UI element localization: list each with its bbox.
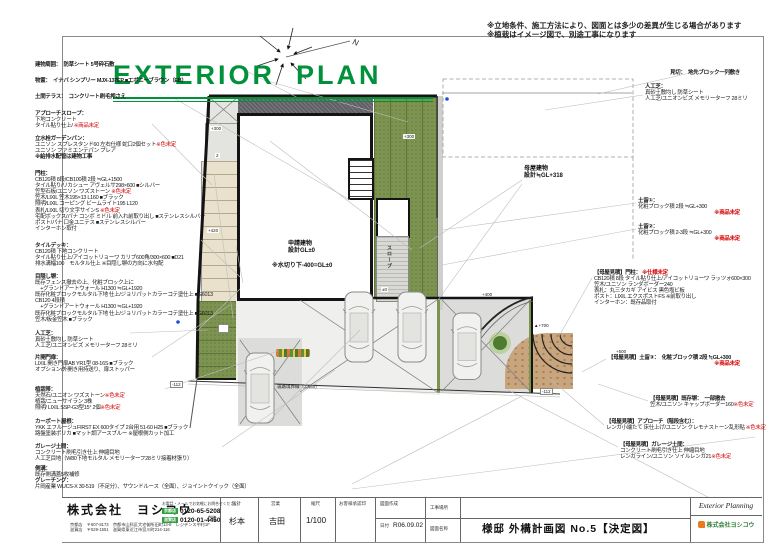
tb-row-divider [375, 518, 690, 519]
entry-porch [376, 198, 410, 238]
dim-400: +400 [481, 292, 493, 297]
spec-carport-roof: カーポート屋根：YKK エフルージュFIRST EX 600タイプ 2台用 51… [35, 419, 188, 437]
mizukiri-note: ※水切り下-400=GL±0 [272, 263, 332, 270]
spec-edge-blocks: 見切： 地先ブロック一列敷き [640, 70, 740, 76]
tb-divider [460, 498, 461, 542]
turf-joint-line-2 [529, 300, 532, 393]
sales-name: 吉田 [269, 516, 285, 527]
tb-divider [335, 498, 336, 542]
spec-doma-terrace: 土間テラス： コンクリート刷毛押さえ [35, 94, 126, 100]
tel-badge-shiga: 滋賀店 [162, 517, 178, 523]
logo-tagline: Exterior Planning [690, 501, 762, 510]
logo-cell: Exterior Planning 株式会社ヨシコウ [690, 498, 762, 542]
spec-retaining-2: 土留②：化粧ブロック積 2-3段 ≒GL+300※商品未定 [638, 224, 740, 242]
spec-artificial-turf-right: 人工芝：真砂土敷均し 防草シート人工芝/ユニオンビズ メモリーターフ 28ミリ [645, 84, 747, 102]
spec-omoya-garage: 【母屋見積】ガレージ土間：コンクリート刷毛引き仕上 伸縮目地レンガライン/ユニソ… [620, 442, 740, 460]
drawing-title: 様邸 外構計画図 No.5【決定図】 [482, 521, 655, 536]
tb-divider [425, 498, 426, 542]
omoya-label-line2: 設計≒GL+318 [524, 173, 563, 180]
disclaimer-line-2: ※植栽はイメージ図で、別途工事になります [487, 30, 741, 39]
dim-700: ▲+700 [533, 323, 550, 328]
date-header: 日付 [380, 523, 389, 529]
scale-header: 縮尺 [311, 501, 320, 507]
slope-ramp-label: スロープ [386, 245, 393, 269]
spec-gate-pillar: 門柱：CB120積 8段/CB100積 2段 ≒GL+1500タイル貼り/リカシ… [35, 171, 205, 232]
company-address-shiga: 滋賀店 〒529-1551 滋賀県東近江市宮川町214-116 [70, 527, 210, 532]
dim-landing: +300 [210, 126, 222, 131]
date-value: R06.09.02 [393, 522, 423, 529]
main-label-line2: 設計GL±0 [288, 248, 315, 255]
tb-divider [375, 498, 376, 542]
omoya-building-label: 母屋建物 設計≒GL+318 [524, 166, 563, 180]
tel-badge-kyoto: 京都店 [162, 508, 178, 514]
tb-divider [300, 498, 301, 542]
spec-artificial-turf: 人工芝：真砂土敷均し 防草シート人工芝/ユニオンビズ メモリーターフ 28ミリ [35, 331, 137, 349]
dim-500: +500 [615, 349, 627, 354]
main-building-outline [237, 113, 373, 301]
spec-storage-shed: 物置： イナバ シンプリー MJX-137EP ■エボニーブラウン（EB） [35, 78, 187, 84]
designer-header: 設計 [232, 501, 241, 507]
drawing-name-header: 図面名称 [430, 526, 448, 532]
approval-header: お客様承認印 [339, 501, 366, 507]
spec-omoya-approach: 【母屋見積】アプローチ（階段含む）：レンガ小端たて 床仕上げ/ユニソン クレモナ… [606, 419, 740, 431]
disclaimer-line-1: ※立地条件、施工方法により、図面とは多少の差異が生じる場合があります [487, 21, 741, 30]
company-contact-note: お電話・メールでお気軽にお問合せください [162, 502, 238, 507]
drawn-header: 図面作成 [380, 501, 398, 507]
spec-omoya-existing-wall: 【母屋見積】既存塀： 一部撤去笠木/ユニソン キャップボーダー160※色未定 [650, 396, 740, 408]
scale-value: 1/100 [306, 516, 326, 525]
main-building-label: 申請建物 設計GL±0 [288, 241, 315, 255]
spec-gutter: 側溝：既存側溝蓋5枚補修グレーチング：片岡産業 WUCS-X 30-519（不足… [35, 466, 250, 490]
tb-divider [258, 498, 259, 542]
site-location-header: 工事場所 [430, 505, 448, 511]
company-logo: 株式会社ヨシコウ [690, 520, 762, 529]
spec-approach-slope: アプローチスロープ：下地コンクリートタイル貼り仕上/ ※商品未定 [35, 111, 99, 129]
dim-green300: +300 [403, 134, 415, 139]
dim-step2: 2 [215, 153, 220, 158]
mail-icon: ✉ [208, 514, 216, 525]
dim-mid: +420 [207, 228, 219, 233]
turf-marker-box [218, 324, 229, 333]
sales-header: 営業 [271, 501, 280, 507]
spec-omoya-retaining-3: 【母屋見積】土留③： 化粧ブロック積 2段 ≒GL+300※商品未定 [608, 355, 740, 367]
spec-privacy-wall: 目隠し塀：既存フェンス撤去の上、化粧ブロック上に +グランドアートウォール H1… [35, 274, 213, 323]
spec-planting-bed: 植栽帯：天然石/ユニオン ワズストーン※色未定植栽/ニューサイラン 3株照明/ … [35, 387, 125, 411]
building-stairs [348, 158, 374, 200]
disclaimer-notes: ※立地条件、施工方法により、図面とは多少の差異が生じる場合があります ※植栽はイ… [487, 21, 741, 39]
title-underline [113, 97, 433, 99]
dim-zero: ±0 [381, 287, 388, 292]
title-block: 株式会社 ヨシコウ 京都店 〒607-8173 京都市山科区大宅御所田町13-8… [62, 497, 762, 542]
planting-strip-zone [276, 349, 310, 357]
spec-garage-slab: ガレージ土間：コンクリート刷毛引き仕上 伸縮目地人工芝目地（W80下地モルタル … [35, 444, 192, 462]
road-boundary-label: 道路境界線（3,680） [276, 384, 321, 389]
turf-joint-line-1 [437, 300, 440, 393]
spec-omoya-gate-pillar: 【母屋見積】門柱： ※仕様未定CB120積 8段 タイル貼り仕上/アイコットリョ… [594, 270, 751, 307]
page-title: EXTERIOR PLAN [113, 60, 382, 91]
designer-name: 杉本 [229, 516, 245, 527]
logo-mark-icon [698, 521, 705, 528]
spec-swing-gate: 片開門扉：LIXIL 開き門扉AB YR1型 08-16S ■ブラックオプション… [35, 355, 135, 373]
spec-building-perimeter: 建物周囲： 防草シート 5号砕石敷 [35, 62, 114, 68]
spec-water-tap: 立水栓ガーデンパン：ユニソン スプレスタンド60 左右仕様 蛇口2個セット※色未… [35, 136, 176, 160]
spec-tile-deck: タイルデッキ：CB120積 下地コンクリートタイル貼り仕上/アイコットリョーワ … [35, 243, 184, 267]
dim-112-right: -112 [540, 388, 553, 395]
title-underline-2 [113, 101, 433, 102]
dim-112-left: -112 [170, 381, 183, 388]
logo-company-name: 株式会社ヨシコウ [707, 523, 755, 529]
spec-retaining-1: 土留①：化粧ブロック積 2段 ≒GL+300※商品未定 [638, 198, 740, 216]
retaining-block-strip [437, 96, 443, 310]
